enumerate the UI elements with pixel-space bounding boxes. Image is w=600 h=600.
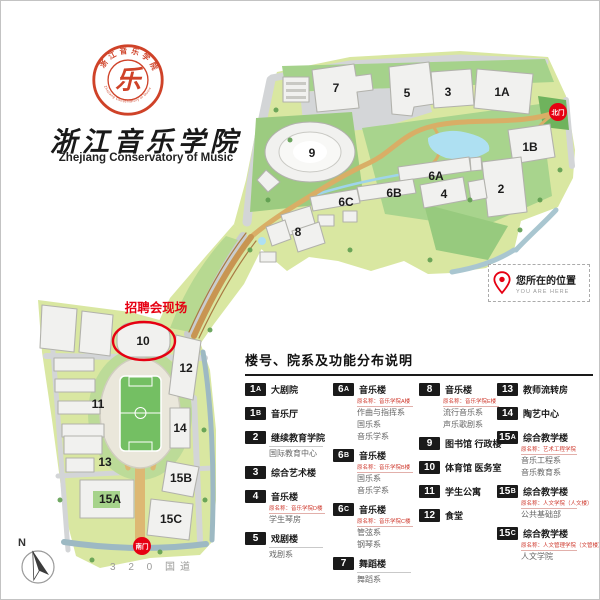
legend-entry-7: 7舞蹈楼舞蹈系 xyxy=(333,557,419,586)
legend-divider xyxy=(357,572,411,573)
legend-sub: 原名称：人文学院（人文楼）公共基础部 xyxy=(521,499,593,521)
legend-department: 流行音乐系 xyxy=(443,407,497,419)
legend-badge: 2 xyxy=(245,431,266,444)
map-label-14: 14 xyxy=(173,421,187,435)
legend-badge: 15C xyxy=(497,527,518,540)
legend-building-name: 体育馆 医务室 xyxy=(445,461,502,474)
map-label-11: 11 xyxy=(92,397,105,411)
legend-badge: 1A xyxy=(245,383,266,396)
legend-entry-15A: 15A综合教学楼原名称：艺术工程学院音乐工程系音乐教育系 xyxy=(497,431,593,479)
legend-original-name: 原名称：音乐学院E楼 xyxy=(443,397,499,407)
legend-badge: 7 xyxy=(333,557,354,570)
legend-building-name: 继续教育学院 xyxy=(271,431,325,444)
legend-building-name: 综合教学楼 xyxy=(523,485,568,498)
legend-building-name: 大剧院 xyxy=(271,383,298,396)
you-are-here-cn: 您所在的位置 xyxy=(516,272,576,287)
legend-badge: 11 xyxy=(419,485,440,498)
legend-building-name: 音乐楼 xyxy=(445,383,472,396)
legend-building-name: 综合艺术楼 xyxy=(271,466,316,479)
map-label-15C: 15C xyxy=(160,512,182,526)
legend-entry-10: 10体育馆 医务室 xyxy=(419,461,497,474)
legend-entry-9: 9图书馆 行政楼 xyxy=(419,437,497,450)
legend-entry-6B: 6B音乐楼原名称：音乐学院B楼国乐系音乐学系 xyxy=(333,449,419,497)
legend-building-name: 音乐楼 xyxy=(359,449,386,462)
legend-department: 国乐系 xyxy=(357,419,419,431)
legend-badge: 13 xyxy=(497,383,518,396)
legend-department: 音乐学系 xyxy=(357,485,419,497)
legend-building-name: 音乐楼 xyxy=(271,490,298,503)
legend-sub: 原名称：音乐学院E楼流行音乐系声乐歌剧系 xyxy=(443,397,497,431)
map-label-2: 2 xyxy=(498,182,505,196)
legend-original-name: 原名称：音乐学院B楼 xyxy=(357,463,413,473)
map-label-15B: 15B xyxy=(170,471,192,485)
legend-building-name: 综合教学楼 xyxy=(523,431,568,444)
legend-entry-4: 4音乐楼原名称：音乐学院D楼学生琴房 xyxy=(245,490,333,526)
legend-entry-6A: 6A音乐楼原名称：音乐学院A楼作曲与指挥系国乐系音乐学系 xyxy=(333,383,419,443)
legend-entry-2: 2继续教育学院国际教育中心 xyxy=(245,431,333,460)
map-label-1B: 1B xyxy=(522,140,538,154)
legend-column: 8音乐楼原名称：音乐学院E楼流行音乐系声乐歌剧系9图书馆 行政楼10体育馆 医务… xyxy=(419,383,497,592)
legend-badge: 6C xyxy=(333,503,354,516)
legend-sub: 原名称：音乐学院A楼作曲与指挥系国乐系音乐学系 xyxy=(357,397,419,443)
compass: N xyxy=(18,537,54,583)
location-pin-icon xyxy=(493,271,511,295)
legend-department: 学生琴房 xyxy=(269,514,333,526)
legend-sub: 舞蹈系 xyxy=(357,572,419,586)
legend-building-name: 陶艺中心 xyxy=(523,407,559,420)
legend-department: 舞蹈系 xyxy=(357,574,419,586)
legend-department: 音乐工程系 xyxy=(521,455,593,467)
legend-department: 戏剧系 xyxy=(269,549,333,561)
legend-badge: 14 xyxy=(497,407,518,420)
legend-department: 钢琴系 xyxy=(357,539,419,551)
legend-building-name: 食堂 xyxy=(445,509,463,522)
legend-badge: 10 xyxy=(419,461,440,474)
legend-entry-3: 3综合艺术楼 xyxy=(245,466,333,479)
legend-panel: 楼号、院系及功能分布说明 1A大剧院1B音乐厅2继续教育学院国际教育中心3综合艺… xyxy=(245,350,593,592)
map-label-6A: 6A xyxy=(428,169,444,183)
legend-sub: 戏剧系 xyxy=(269,547,333,561)
legend-original-name: 原名称：人文学院（人文楼） xyxy=(521,499,577,509)
legend-entry-14: 14陶艺中心 xyxy=(497,407,593,420)
legend-department: 管弦系 xyxy=(357,527,419,539)
north-gate-label: 北门 xyxy=(552,108,566,117)
legend-badge: 8 xyxy=(419,383,440,396)
legend-building-name: 音乐楼 xyxy=(359,503,386,516)
compass-n-label: N xyxy=(18,537,26,549)
legend-department: 人文学院 xyxy=(521,551,593,563)
legend-divider xyxy=(269,446,323,447)
legend-original-name: 原名称：艺术工程学院 xyxy=(521,445,577,455)
legend-columns: 1A大剧院1B音乐厅2继续教育学院国际教育中心3综合艺术楼4音乐楼原名称：音乐学… xyxy=(245,383,593,592)
legend-entry-12: 12食堂 xyxy=(419,509,497,522)
legend-column: 13教师流转房14陶艺中心15A综合教学楼原名称：艺术工程学院音乐工程系音乐教育… xyxy=(497,383,593,592)
legend-entry-15C: 15C综合教学楼原名称：人文管理学院（文管楼）人文学院 xyxy=(497,527,593,563)
map-label-8: 8 xyxy=(295,225,302,239)
legend-department: 国际教育中心 xyxy=(269,448,333,460)
legend-entry-11: 11学生公寓 xyxy=(419,485,497,498)
legend-building-name: 舞蹈楼 xyxy=(359,557,386,570)
legend-badge: 1B xyxy=(245,407,266,420)
road-320-label: 3 2 0 国道 xyxy=(110,560,195,573)
legend-badge: 9 xyxy=(419,437,440,450)
you-are-here-box: 您所在的位置 YOU ARE HERE xyxy=(488,264,590,302)
legend-original-name: 原名称：人文管理学院（文管楼） xyxy=(521,541,577,551)
you-are-here-en: YOU ARE HERE xyxy=(516,289,576,295)
legend-column: 1A大剧院1B音乐厅2继续教育学院国际教育中心3综合艺术楼4音乐楼原名称：音乐学… xyxy=(245,383,333,592)
job-fair-label: 招聘会现场 xyxy=(125,300,188,315)
map-label-7: 7 xyxy=(333,81,340,95)
legend-badge: 12 xyxy=(419,509,440,522)
legend-department: 公共基础部 xyxy=(521,509,593,521)
map-label-6C: 6C xyxy=(338,195,354,209)
north-gate-badge: 北门 xyxy=(549,103,567,121)
legend-badge: 6B xyxy=(333,449,354,462)
legend-building-name: 图书馆 行政楼 xyxy=(445,437,502,450)
legend-building-name: 戏剧楼 xyxy=(271,532,298,545)
legend-department: 作曲与指挥系 xyxy=(357,407,419,419)
legend-sub: 原名称：音乐学院D楼学生琴房 xyxy=(269,504,333,526)
legend-badge: 15A xyxy=(497,431,518,444)
legend-entry-8: 8音乐楼原名称：音乐学院E楼流行音乐系声乐歌剧系 xyxy=(419,383,497,431)
legend-original-name: 原名称：音乐学院C楼 xyxy=(357,517,413,527)
legend-original-name: 原名称：音乐学院D楼 xyxy=(269,504,325,514)
legend-building-name: 学生公寓 xyxy=(445,485,481,498)
legend-building-name: 音乐楼 xyxy=(359,383,386,396)
legend-sub: 国际教育中心 xyxy=(269,446,333,460)
pond xyxy=(258,237,266,245)
legend-badge: 5 xyxy=(245,532,266,545)
legend-sub: 原名称：音乐学院C楼管弦系钢琴系 xyxy=(357,517,419,551)
south-gate-badge: 南门 xyxy=(133,537,151,555)
legend-building-name: 音乐厅 xyxy=(271,407,298,420)
legend-original-name: 原名称：音乐学院A楼 xyxy=(357,397,413,407)
legend-title: 楼号、院系及功能分布说明 xyxy=(245,350,593,376)
map-label-13: 13 xyxy=(98,455,112,469)
legend-badge: 4 xyxy=(245,490,266,503)
legend-department: 国乐系 xyxy=(357,473,419,485)
map-label-15A: 15A xyxy=(99,492,121,506)
legend-entry-13: 13教师流转房 xyxy=(497,383,593,396)
legend-sub: 原名称：音乐学院B楼国乐系音乐学系 xyxy=(357,463,419,497)
stadium xyxy=(100,358,180,468)
legend-entry-6C: 6C音乐楼原名称：音乐学院C楼管弦系钢琴系 xyxy=(333,503,419,551)
map-label-1A: 1A xyxy=(494,85,510,99)
south-gate-label: 南门 xyxy=(136,542,150,551)
map-label-12: 12 xyxy=(179,361,193,375)
legend-entry-1A: 1A大剧院 xyxy=(245,383,333,396)
map-label-10: 10 xyxy=(136,334,150,348)
map-label-9: 9 xyxy=(309,146,316,160)
map-label-4: 4 xyxy=(441,187,448,201)
map-label-3: 3 xyxy=(445,85,452,99)
legend-building-name: 综合教学楼 xyxy=(523,527,568,540)
map-label-5: 5 xyxy=(404,86,411,100)
map-label-6B: 6B xyxy=(386,186,402,200)
legend-entry-1B: 1B音乐厅 xyxy=(245,407,333,420)
legend-badge: 6A xyxy=(333,383,354,396)
legend-badge: 3 xyxy=(245,466,266,479)
legend-entry-15B: 15B综合教学楼原名称：人文学院（人文楼）公共基础部 xyxy=(497,485,593,521)
legend-badge: 15B xyxy=(497,485,518,498)
legend-department: 音乐学系 xyxy=(357,431,419,443)
legend-department: 声乐歌剧系 xyxy=(443,419,497,431)
legend-divider xyxy=(269,547,323,548)
legend-building-name: 教师流转房 xyxy=(523,383,568,396)
legend-sub: 原名称：人文管理学院（文管楼）人文学院 xyxy=(521,541,593,563)
legend-column: 6A音乐楼原名称：音乐学院A楼作曲与指挥系国乐系音乐学系6B音乐楼原名称：音乐学… xyxy=(333,383,419,592)
legend-department: 音乐教育系 xyxy=(521,467,593,479)
legend-sub: 原名称：艺术工程学院音乐工程系音乐教育系 xyxy=(521,445,593,479)
legend-entry-5: 5戏剧楼戏剧系 xyxy=(245,532,333,561)
